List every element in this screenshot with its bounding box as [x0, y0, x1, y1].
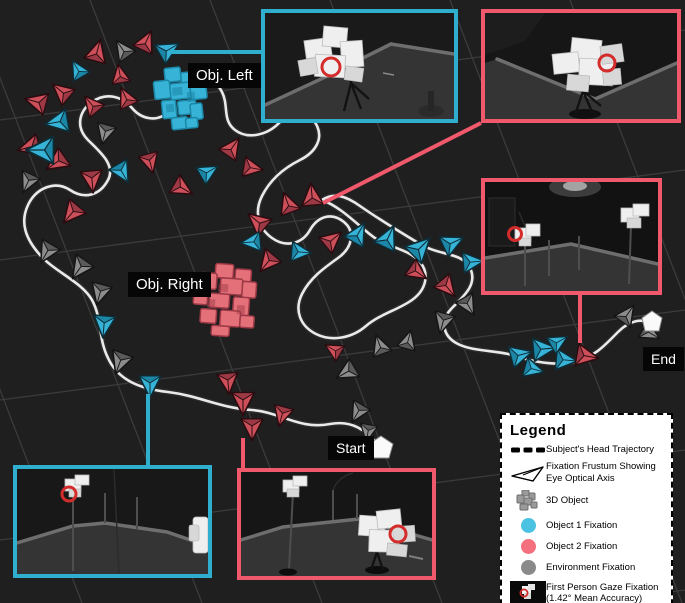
start-label: Start	[328, 436, 374, 460]
legend-item-frustum: Fixation Frustum Showing Eye Optical Axi…	[510, 461, 663, 484]
fixation-frustum-o2	[274, 189, 301, 216]
frustum-icon	[510, 463, 546, 483]
object-left-label: Obj. Left	[188, 63, 261, 88]
3d-object-icon	[510, 490, 546, 512]
fixation-frustum-o2	[84, 37, 111, 64]
red-circle-icon	[510, 539, 546, 554]
fixation-frustum-o2	[252, 249, 281, 278]
fixation-frustum-o2	[575, 344, 600, 369]
inset-object2-room	[237, 468, 436, 580]
fixation-frustum-o2	[242, 157, 265, 180]
inset-room-wide-view	[485, 182, 658, 291]
fixation-frustum-o1	[196, 158, 223, 185]
fixation-frustum-o1	[239, 231, 260, 252]
legend-item-label: First Person Gaze Fixation (1.42° Mean A…	[546, 582, 663, 603]
inset-object1-closeup-view	[265, 13, 454, 119]
legend-item-label: 3D Object	[546, 495, 588, 506]
inset-room-wide	[481, 178, 662, 295]
inset-object2-room-view	[241, 472, 432, 576]
cyan-circle-icon	[510, 518, 546, 533]
inset-object2-closeup	[481, 9, 681, 123]
legend-box: Legend Subject's Head Trajectory Fixatio…	[500, 413, 673, 603]
legend-item-label: Subject's Head Trajectory	[546, 444, 654, 455]
fixation-frustum-o2	[22, 88, 49, 115]
object-right-label: Obj. Right	[128, 272, 211, 297]
fixation-frustum-o2	[300, 182, 324, 206]
fixation-frustum-o1	[155, 34, 185, 64]
inset-object1-closeup	[261, 9, 458, 123]
legend-item-object2: Object 2 Fixation	[510, 539, 663, 554]
legend-title: Legend	[510, 422, 663, 439]
fixation-frustum-o2	[55, 199, 86, 230]
legend-item-label: Fixation Frustum Showing Eye Optical Axi…	[546, 461, 663, 484]
fixation-frustum-o1	[404, 229, 438, 263]
legend-item-first-person: First Person Gaze Fixation (1.42° Mean A…	[510, 581, 663, 603]
fixation-frustum-o1	[64, 56, 90, 82]
dashed-line-icon	[510, 446, 546, 454]
fixation-frustum-o1	[556, 349, 579, 372]
fixation-frustum-env	[397, 328, 420, 351]
fixation-frustum-o2	[109, 62, 131, 84]
fixation-frustum-o2	[241, 419, 263, 441]
fixation-frustum-env	[430, 311, 456, 337]
end-label: End	[643, 347, 684, 371]
fixation-frustum-o2	[138, 152, 162, 176]
inset-object1-room-view	[17, 469, 208, 574]
gaze-thumbnail-icon	[510, 581, 546, 603]
legend-item-label: Object 1 Fixation	[546, 520, 617, 531]
fixation-frustum-o2	[169, 175, 198, 204]
legend-item-label: Environment Fixation	[546, 562, 635, 573]
fixation-frustum-o2	[46, 76, 75, 105]
inset-object1-room	[13, 465, 212, 578]
fixation-frustum-o2	[133, 26, 161, 54]
legend-item-3d-object: 3D Object	[510, 490, 663, 512]
legend-item-environment: Environment Fixation	[510, 560, 663, 575]
legend-item-trajectory: Subject's Head Trajectory	[510, 444, 663, 455]
fixation-frustum-env	[92, 123, 116, 147]
gray-circle-icon	[510, 560, 546, 575]
legend-item-object1: Object 1 Fixation	[510, 518, 663, 533]
fixation-frustum-o2	[405, 259, 433, 287]
figure-canvas: Obj. Left Obj. Right Start End	[0, 0, 685, 603]
fixation-frustum-env	[331, 359, 360, 388]
inset-object2-closeup-view	[485, 13, 677, 119]
fixation-frustum-env	[367, 332, 392, 357]
legend-item-label: Object 2 Fixation	[546, 541, 617, 552]
fixation-frustum-o1	[109, 159, 138, 188]
